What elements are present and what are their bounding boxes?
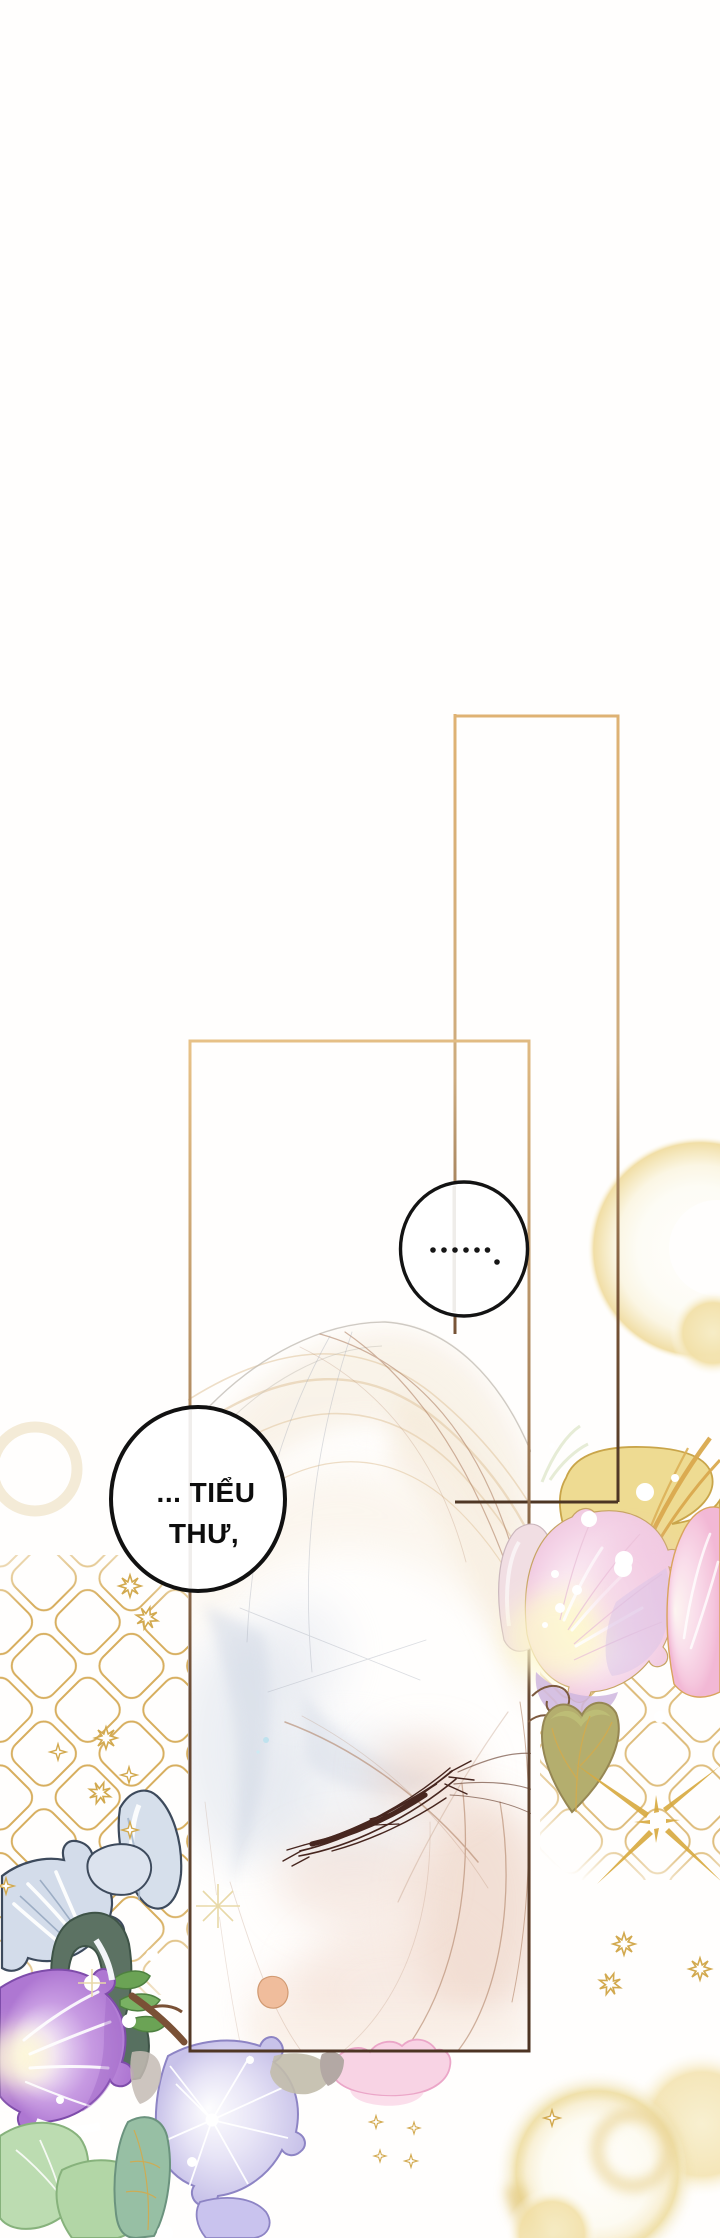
svg-text:... TIỂU: ... TIỂU — [157, 1477, 256, 1508]
svg-text:THƯ,: THƯ, — [169, 1518, 239, 1549]
